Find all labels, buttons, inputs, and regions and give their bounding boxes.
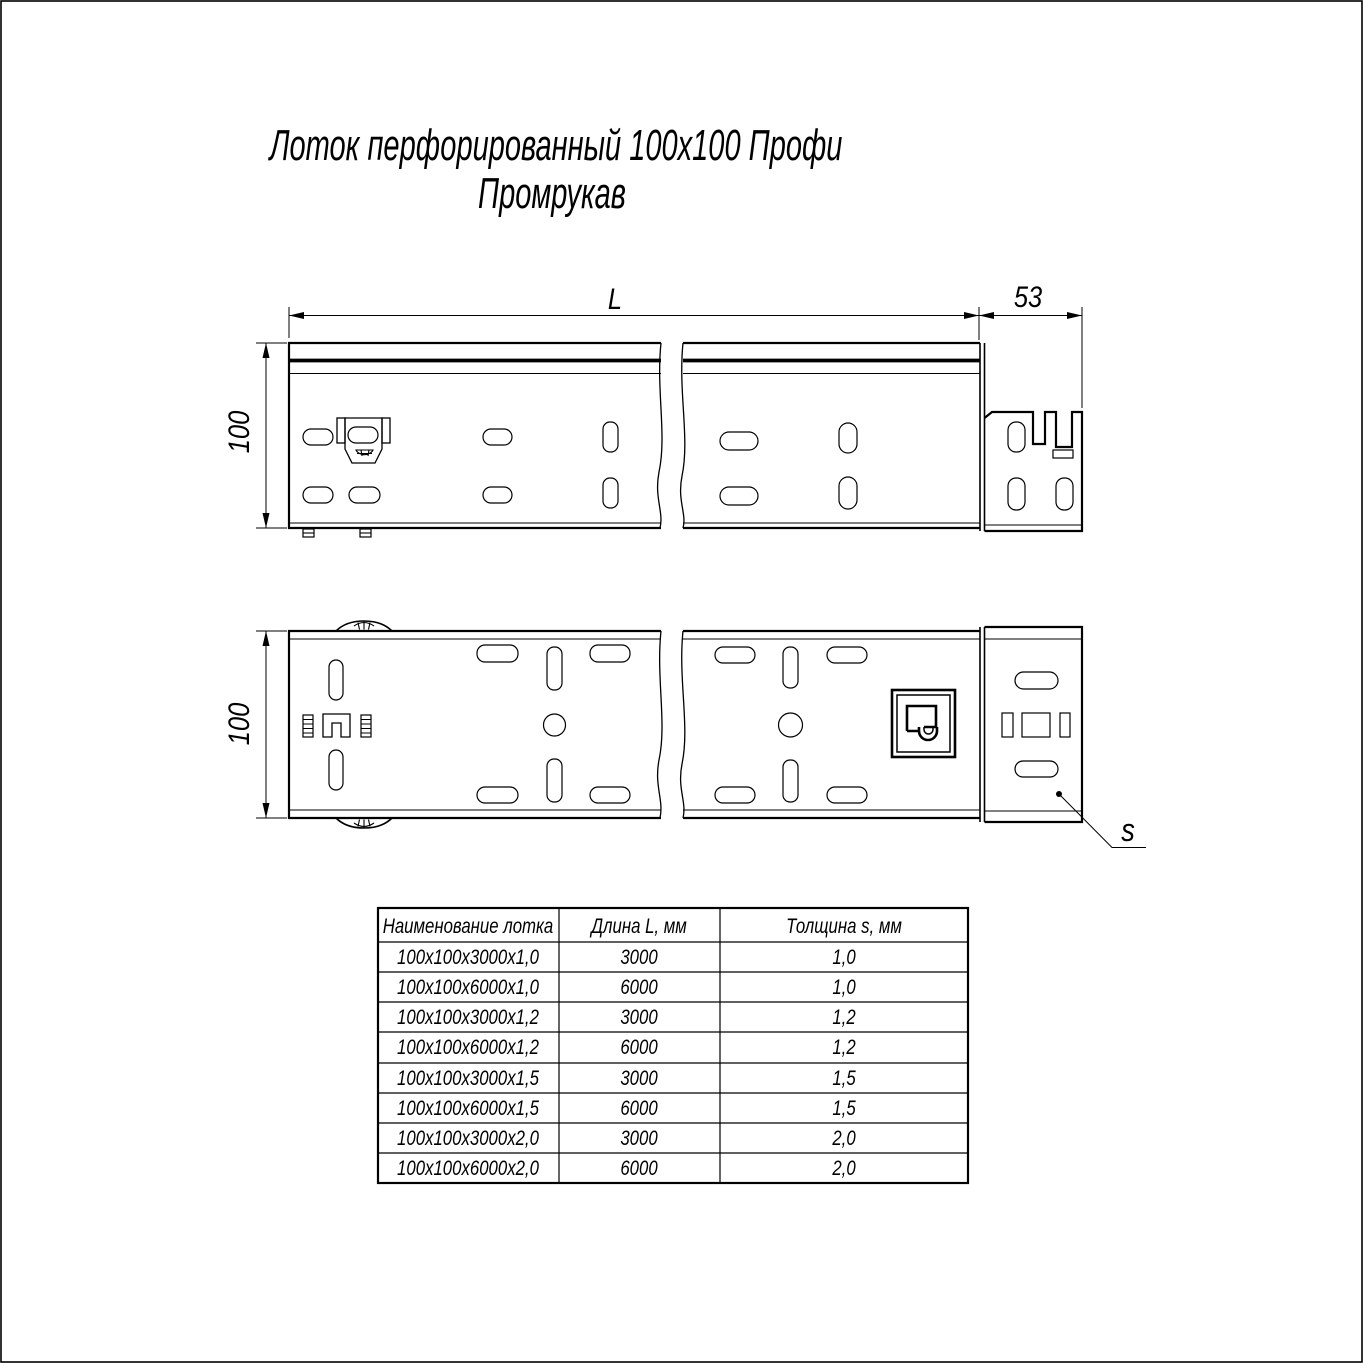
cell-thickness: 1,5 <box>832 1067 856 1090</box>
col-header-length: Длина L, мм <box>589 915 686 938</box>
cell-length: 6000 <box>620 1097 658 1120</box>
cell-name: 100х100х3000х2,0 <box>397 1127 539 1150</box>
col-header-name: Наименование лотка <box>383 915 554 938</box>
cell-length: 3000 <box>620 1006 658 1029</box>
cell-length: 3000 <box>620 946 658 969</box>
dim-label-100-bottom: 100 <box>222 702 255 745</box>
cell-length: 3000 <box>620 1067 658 1090</box>
cell-length: 6000 <box>620 1157 658 1180</box>
cell-name: 100х100х6000х1,5 <box>397 1097 539 1120</box>
cell-thickness: 1,2 <box>832 1006 856 1029</box>
cell-name: 100х100х6000х1,2 <box>397 1036 539 1059</box>
cell-name: 100х100х3000х1,2 <box>397 1006 539 1029</box>
dim-label-100-top: 100 <box>222 410 255 453</box>
drawing-canvas: Лоток перфорированный 100х100 Профи Пром… <box>0 0 1363 1363</box>
page-frame <box>1 1 1362 1362</box>
cell-length: 6000 <box>620 1036 658 1059</box>
cell-name: 100х100х6000х1,0 <box>397 976 539 999</box>
dim-label-s: s <box>1121 813 1135 849</box>
drawing-page: Лоток перфорированный 100х100 Профи Пром… <box>0 0 1363 1363</box>
cell-name: 100х100х3000х1,5 <box>397 1067 539 1090</box>
cell-thickness: 1,0 <box>832 946 856 969</box>
table-header-row: Наименование лотка Длина L, мм Толщина s… <box>383 915 902 938</box>
cell-thickness: 1,5 <box>832 1097 856 1120</box>
cell-name: 100х100х3000х1,0 <box>397 946 539 969</box>
dim-label-L: L <box>608 282 622 315</box>
cell-thickness: 2,0 <box>831 1127 856 1150</box>
cell-length: 6000 <box>620 976 658 999</box>
cell-thickness: 1,0 <box>832 976 856 999</box>
cell-name: 100х100х6000х2,0 <box>397 1157 539 1180</box>
cell-thickness: 1,2 <box>832 1036 856 1059</box>
cell-length: 3000 <box>620 1127 658 1150</box>
cell-thickness: 2,0 <box>831 1157 856 1180</box>
title-line-1: Лоток перфорированный 100х100 Профи <box>268 120 842 170</box>
dim-label-53: 53 <box>1014 280 1043 313</box>
col-header-thickness: Толщина s, мм <box>786 915 902 938</box>
title-line-2: Промрукав <box>478 168 626 218</box>
